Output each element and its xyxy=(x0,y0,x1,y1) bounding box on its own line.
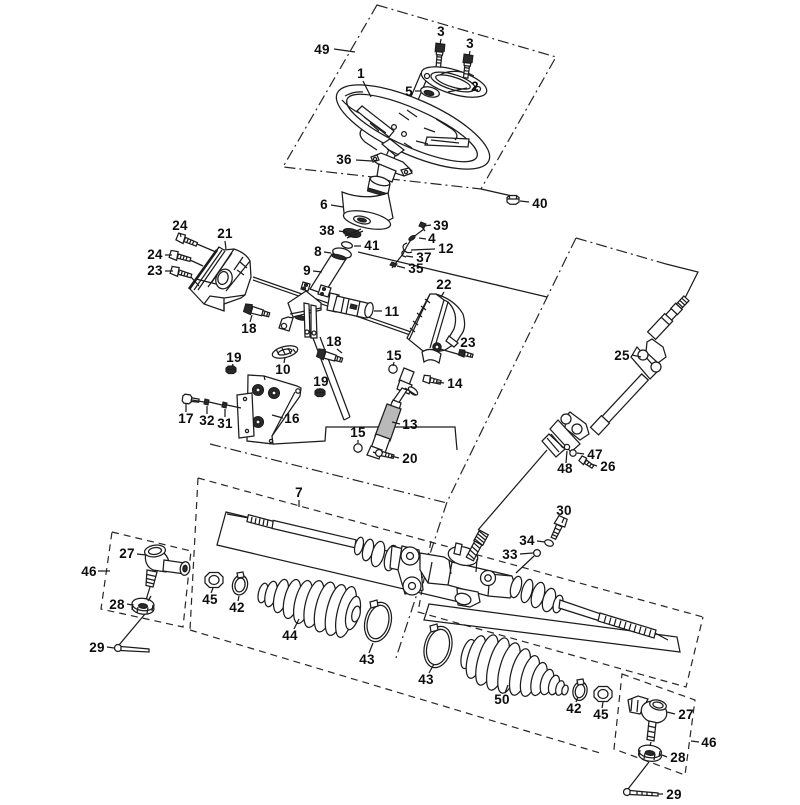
svg-text:24: 24 xyxy=(172,218,188,233)
svg-text:43: 43 xyxy=(418,672,434,687)
svg-text:26: 26 xyxy=(600,459,616,474)
svg-text:27: 27 xyxy=(678,707,694,722)
svg-text:38: 38 xyxy=(319,223,335,238)
svg-text:7: 7 xyxy=(295,485,303,500)
svg-text:4: 4 xyxy=(428,231,436,246)
svg-text:29: 29 xyxy=(666,787,682,800)
svg-text:40: 40 xyxy=(532,196,548,211)
svg-text:36: 36 xyxy=(336,152,352,167)
svg-text:46: 46 xyxy=(701,735,717,750)
svg-text:3: 3 xyxy=(437,24,445,39)
svg-text:31: 31 xyxy=(217,416,233,431)
svg-text:43: 43 xyxy=(359,652,375,667)
svg-text:17: 17 xyxy=(178,411,194,426)
svg-text:13: 13 xyxy=(402,417,418,432)
svg-text:12: 12 xyxy=(438,241,454,256)
svg-text:46: 46 xyxy=(81,564,97,579)
svg-text:34: 34 xyxy=(519,533,535,548)
svg-text:22: 22 xyxy=(436,277,452,292)
svg-text:23: 23 xyxy=(460,335,476,350)
svg-text:18: 18 xyxy=(326,334,342,349)
svg-text:16: 16 xyxy=(284,411,300,426)
svg-text:19: 19 xyxy=(226,350,242,365)
svg-text:8: 8 xyxy=(314,244,322,259)
svg-text:9: 9 xyxy=(303,263,311,278)
svg-text:30: 30 xyxy=(556,503,572,518)
svg-text:48: 48 xyxy=(557,461,573,476)
svg-text:29: 29 xyxy=(89,640,105,655)
svg-text:24: 24 xyxy=(147,247,163,262)
svg-text:45: 45 xyxy=(593,707,609,722)
svg-text:32: 32 xyxy=(199,413,215,428)
svg-text:10: 10 xyxy=(275,362,291,377)
svg-text:20: 20 xyxy=(402,451,418,466)
svg-text:42: 42 xyxy=(566,701,582,716)
svg-text:28: 28 xyxy=(670,750,686,765)
svg-text:1: 1 xyxy=(357,66,365,81)
svg-text:35: 35 xyxy=(408,261,424,276)
svg-text:18: 18 xyxy=(241,321,257,336)
svg-text:15: 15 xyxy=(386,348,402,363)
svg-text:27: 27 xyxy=(119,546,135,561)
svg-text:19: 19 xyxy=(313,374,329,389)
svg-text:44: 44 xyxy=(282,628,298,643)
svg-text:42: 42 xyxy=(229,600,245,615)
svg-text:15: 15 xyxy=(350,425,366,440)
svg-text:3: 3 xyxy=(466,36,474,51)
svg-text:49: 49 xyxy=(314,42,330,57)
svg-text:5: 5 xyxy=(405,84,413,99)
svg-text:2: 2 xyxy=(471,79,479,94)
svg-text:25: 25 xyxy=(614,348,630,363)
svg-text:41: 41 xyxy=(364,238,380,253)
svg-text:21: 21 xyxy=(217,226,233,241)
svg-text:6: 6 xyxy=(320,197,328,212)
svg-text:50: 50 xyxy=(494,692,510,707)
svg-text:28: 28 xyxy=(109,597,125,612)
svg-text:11: 11 xyxy=(385,304,400,319)
svg-text:33: 33 xyxy=(502,547,518,562)
svg-text:14: 14 xyxy=(447,376,463,391)
svg-text:23: 23 xyxy=(147,263,163,278)
svg-text:45: 45 xyxy=(202,592,218,607)
